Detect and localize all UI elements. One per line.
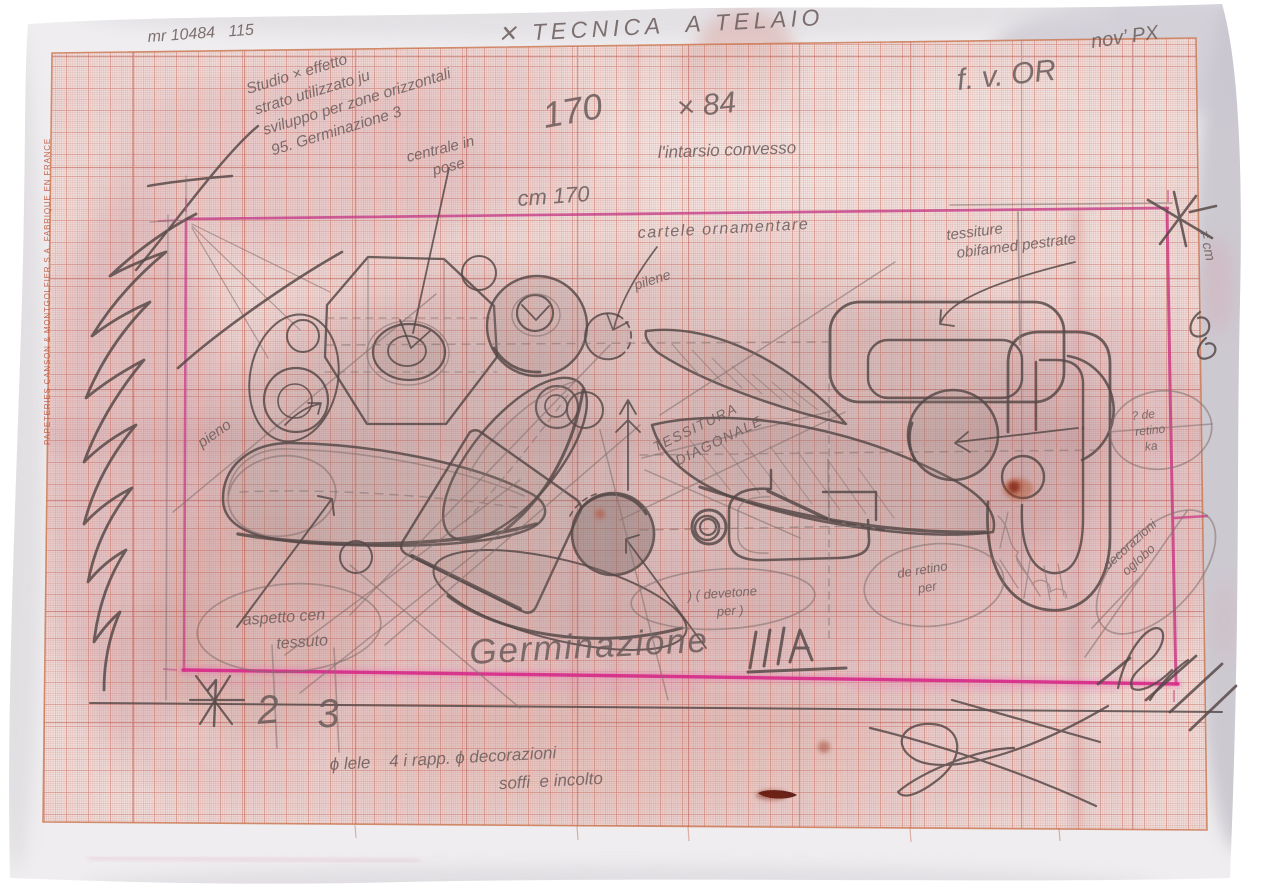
svg-text:per ): per ) <box>715 602 744 619</box>
svg-text:× 84: × 84 <box>675 86 737 125</box>
svg-text:per: per <box>916 578 939 596</box>
svg-text:PAPETERIES CANSON & MONTGOLFIE: PAPETERIES CANSON & MONTGOLFIER S.A. FAB… <box>43 138 52 445</box>
svg-text:ka: ka <box>1144 438 1158 453</box>
svg-text:cm 170: cm 170 <box>517 181 591 211</box>
svg-text:2: 2 <box>254 687 281 733</box>
svg-text:3: 3 <box>315 691 341 737</box>
svg-text:? de: ? de <box>1131 407 1156 423</box>
svg-text:tessuto: tessuto <box>276 632 329 653</box>
